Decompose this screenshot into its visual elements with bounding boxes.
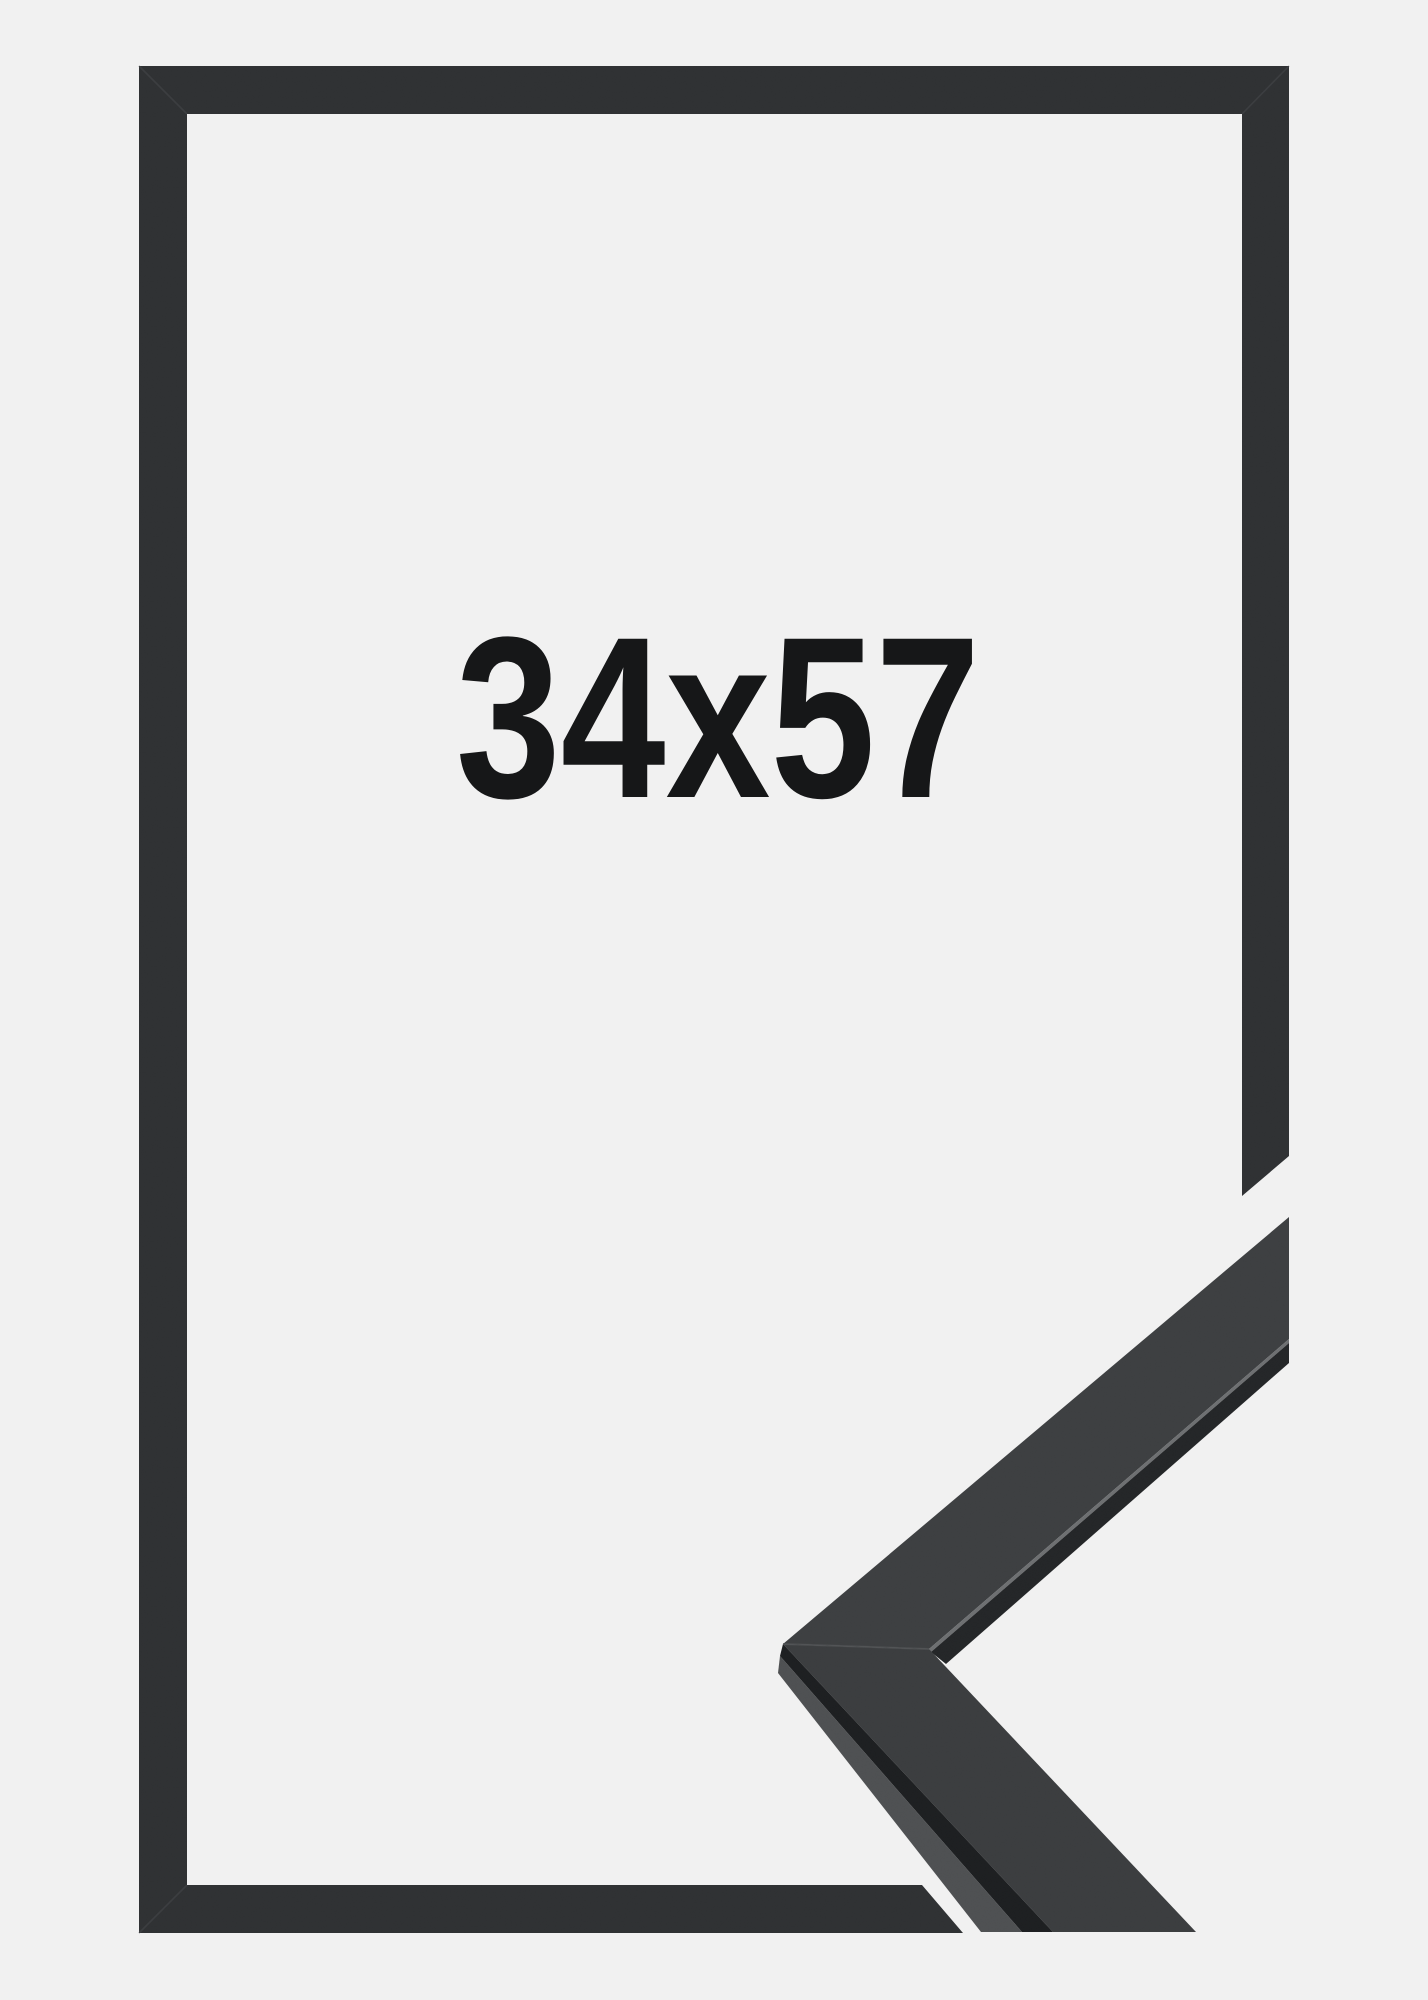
size-label: 34x57 bbox=[456, 603, 980, 833]
frame-graphic bbox=[0, 0, 1428, 2000]
product-photo: 34x57 bbox=[0, 0, 1428, 2000]
film-grain-overlay bbox=[0, 0, 1428, 2000]
